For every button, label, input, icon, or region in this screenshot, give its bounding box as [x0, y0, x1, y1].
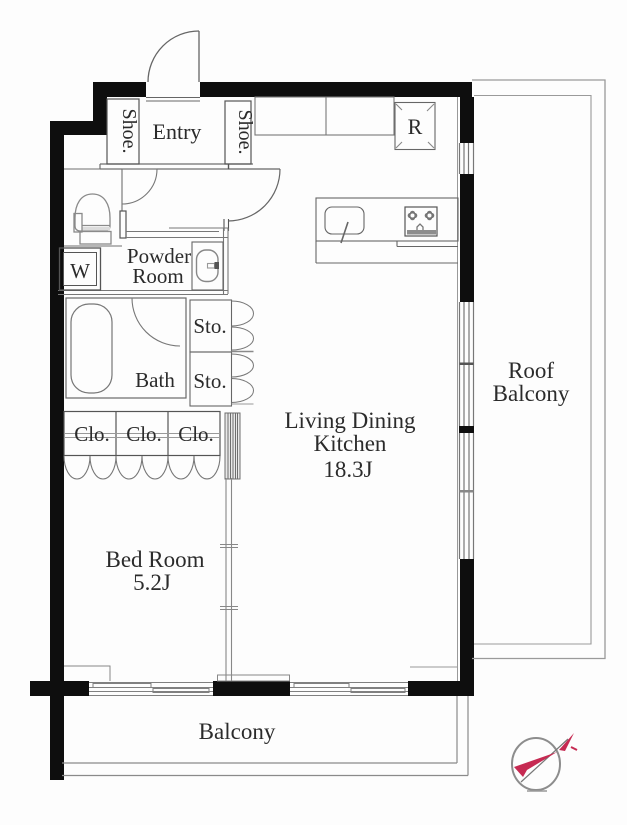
svg-text:Shoe.: Shoe. — [118, 109, 140, 154]
svg-text:Living Dining: Living Dining — [285, 408, 416, 433]
svg-text:Bed Room: Bed Room — [105, 547, 204, 572]
svg-text:R: R — [408, 114, 423, 139]
svg-text:Shoe.: Shoe. — [234, 110, 256, 155]
svg-text:Room: Room — [132, 264, 183, 288]
svg-text:Kitchen: Kitchen — [314, 431, 387, 456]
svg-text:Sto.: Sto. — [193, 369, 226, 393]
svg-text:Entry: Entry — [153, 119, 202, 144]
svg-text:5.2J: 5.2J — [133, 570, 171, 595]
svg-text:Balcony: Balcony — [199, 719, 276, 744]
svg-text:Sto.: Sto. — [193, 314, 226, 338]
svg-text:Roof: Roof — [508, 358, 554, 383]
svg-text:W: W — [70, 259, 90, 283]
svg-text:Clo.: Clo. — [178, 422, 214, 446]
svg-text:Bath: Bath — [135, 368, 175, 392]
svg-text:Clo.: Clo. — [74, 422, 110, 446]
svg-text:18.3J: 18.3J — [323, 457, 372, 482]
svg-text:Balcony: Balcony — [493, 381, 570, 406]
svg-text:Clo.: Clo. — [126, 422, 162, 446]
